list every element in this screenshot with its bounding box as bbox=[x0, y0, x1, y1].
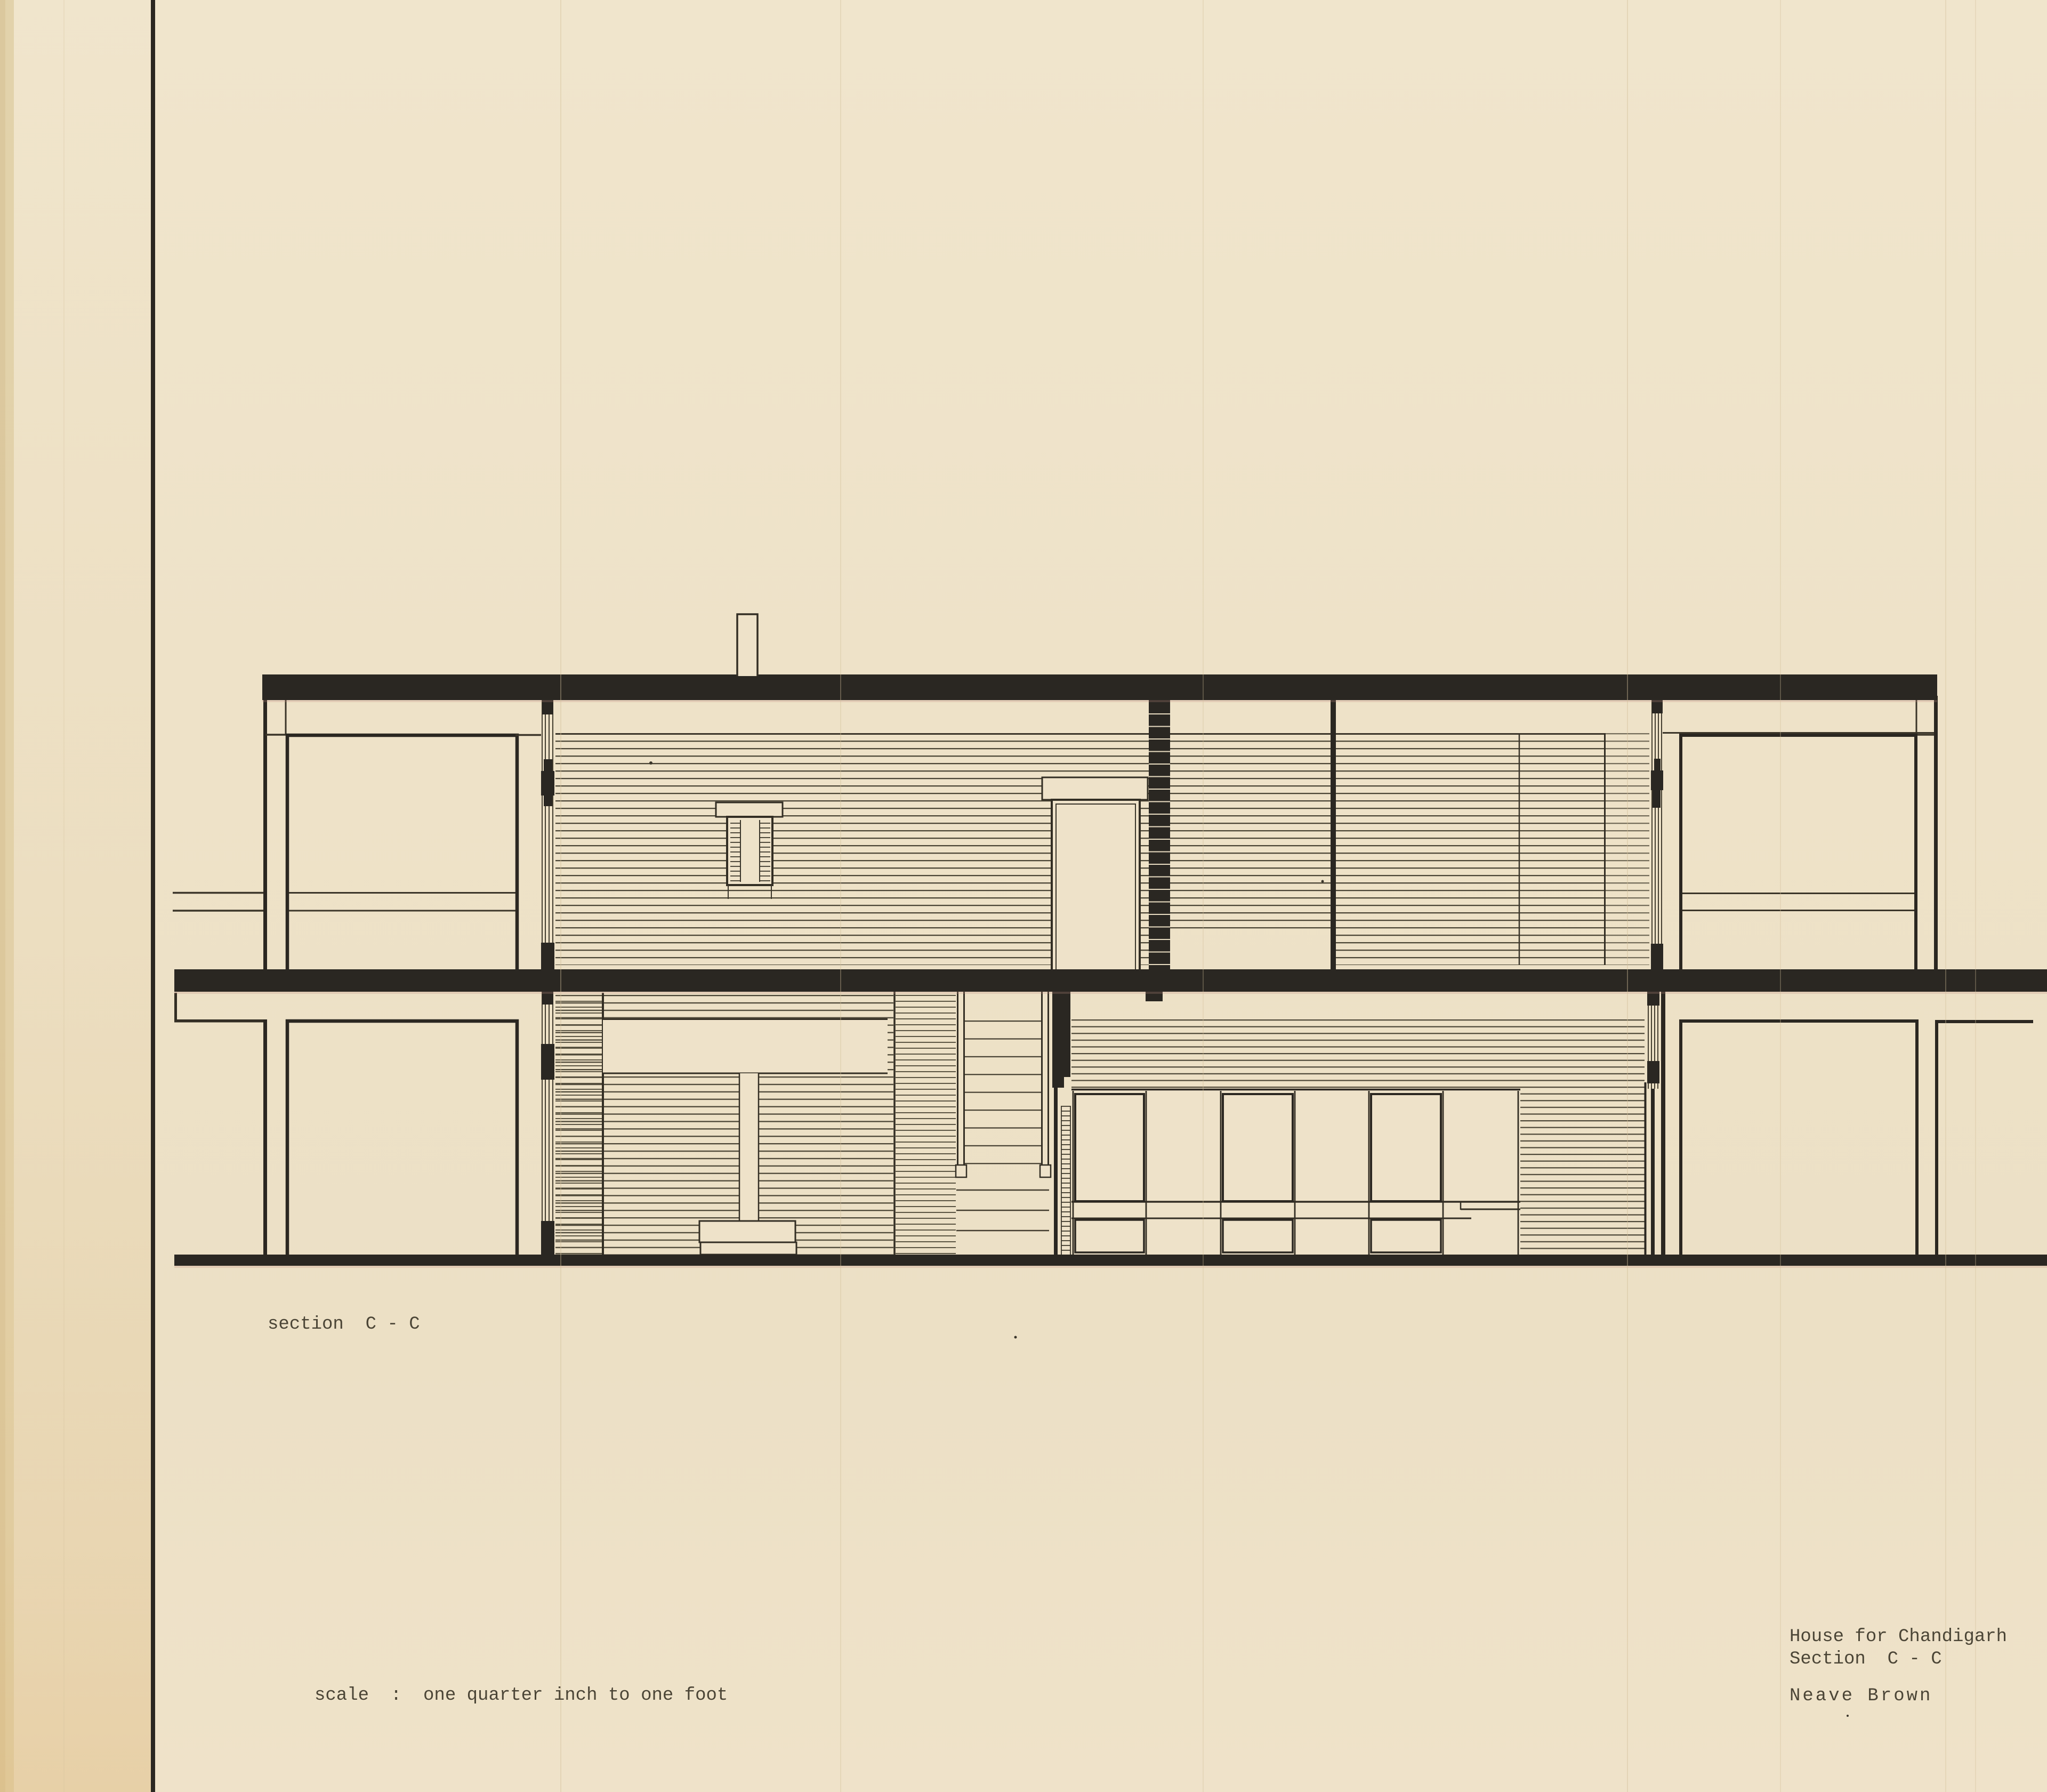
svg-text:Neave Brown: Neave Brown bbox=[1790, 1686, 1932, 1706]
svg-text:section C - C: section C - C bbox=[268, 1314, 420, 1335]
svg-text:scale : one quarter inch to: scale : one quarter inch to one foot bbox=[315, 1685, 728, 1706]
svg-text:Section C - C: Section C - C bbox=[1790, 1649, 1942, 1669]
svg-text:House for Chandigarh: House for Chandigarh bbox=[1790, 1627, 2007, 1647]
